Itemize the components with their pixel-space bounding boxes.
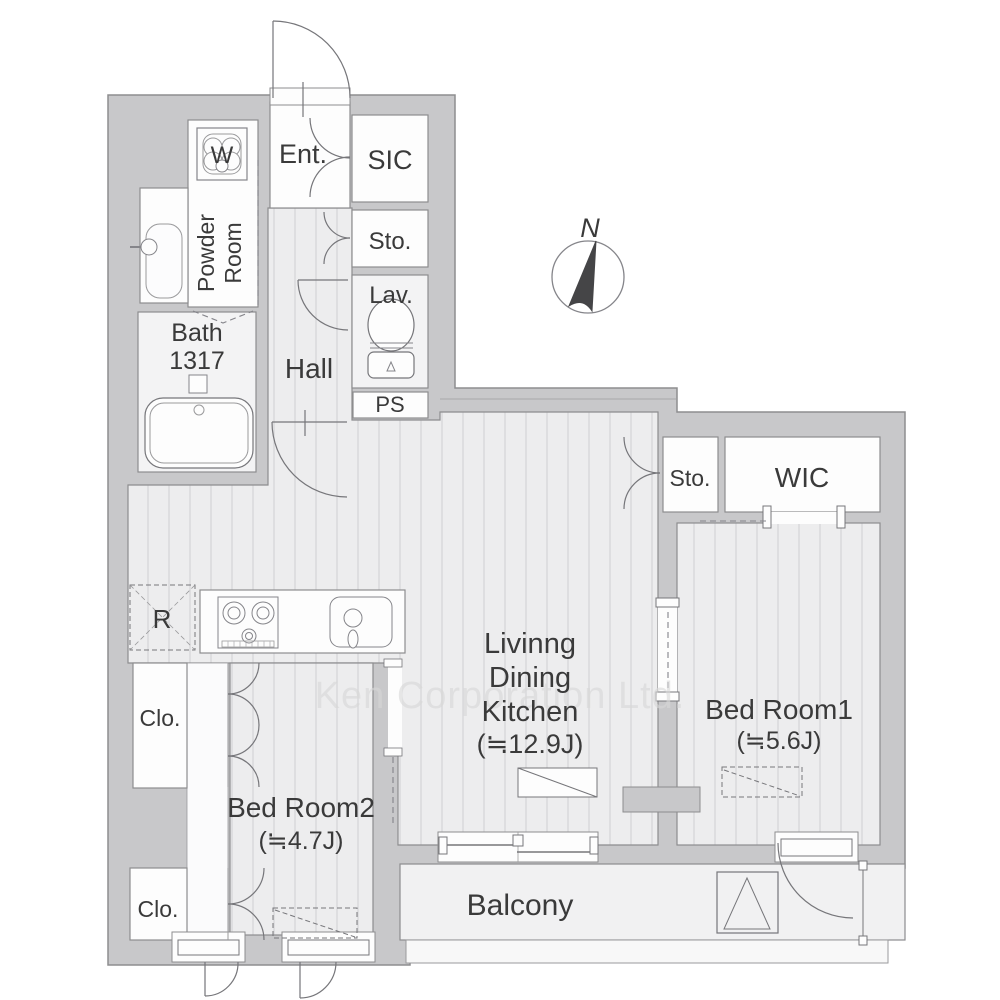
label-bedroom1: Bed Room1 bbox=[705, 694, 853, 725]
balcony-outer-ledge bbox=[406, 940, 888, 963]
label-lavatory: Lav. bbox=[369, 282, 413, 309]
entrance-door-swing bbox=[273, 21, 350, 98]
label-bedroom2: Bed Room2 bbox=[227, 792, 375, 823]
wall-stub bbox=[623, 787, 700, 812]
label-storage-right: Sto. bbox=[670, 465, 711, 491]
toilet-icon bbox=[368, 299, 414, 378]
label-powder-line2: Room bbox=[220, 222, 246, 283]
label-bedroom2-area: (≒4.7J) bbox=[259, 827, 344, 855]
label-ldk-line3: Kitchen bbox=[482, 696, 579, 728]
stove-icon bbox=[218, 597, 278, 648]
bedroom2-closet-front-strip bbox=[187, 663, 228, 940]
kitchen-sink-icon bbox=[330, 597, 392, 648]
label-ldk-area: (≒12.9J) bbox=[477, 729, 584, 759]
room-bedroom1-floor bbox=[677, 523, 880, 845]
north-label: N bbox=[580, 213, 600, 243]
label-powder-line1: Powder bbox=[193, 214, 219, 292]
label-bath-size: 1317 bbox=[169, 347, 225, 375]
label-washer: W bbox=[211, 142, 234, 169]
bathtub-icon bbox=[145, 398, 253, 468]
label-ldk-line1: Livinng bbox=[484, 628, 576, 660]
label-wic: WIC bbox=[775, 462, 829, 493]
floor-plan-drawing: Ken Corporation Ltd. N Ent. SIC Sto. Lav… bbox=[0, 0, 1000, 1000]
bath-window-icon bbox=[189, 375, 207, 393]
label-pipe-space: PS bbox=[375, 392, 404, 417]
label-ldk-line2: Dining bbox=[489, 662, 571, 694]
label-bath: Bath bbox=[171, 319, 222, 347]
label-storage-top: Sto. bbox=[369, 228, 412, 255]
label-hall: Hall bbox=[285, 353, 333, 384]
floor-plan-image: Ken Corporation Ltd. N Ent. SIC Sto. Lav… bbox=[0, 0, 1000, 1000]
label-closet-upper: Clo. bbox=[140, 705, 181, 731]
label-sic: SIC bbox=[367, 145, 412, 175]
label-entrance: Ent. bbox=[279, 139, 327, 169]
label-balcony: Balcony bbox=[467, 889, 574, 922]
label-closet-lower: Clo. bbox=[138, 896, 179, 922]
north-compass-icon bbox=[552, 241, 624, 313]
label-bedroom1-area: (≒5.6J) bbox=[737, 727, 822, 755]
ldk-balcony-window bbox=[438, 832, 598, 862]
ldk-counter-symbol bbox=[518, 768, 597, 797]
label-refrigerator: R bbox=[153, 604, 172, 634]
